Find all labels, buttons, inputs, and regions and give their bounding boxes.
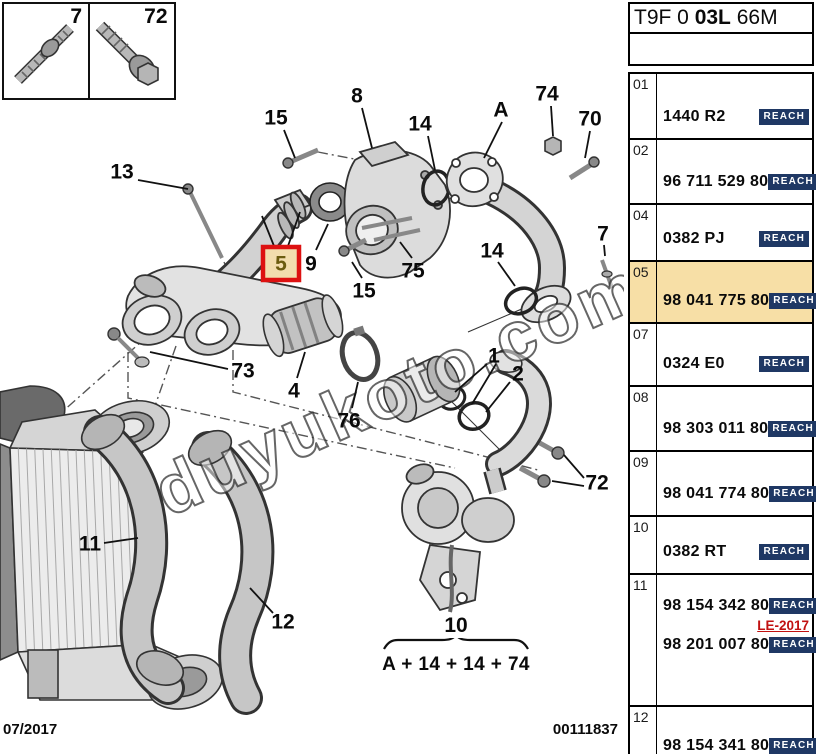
reach-badge-button[interactable]: REACH [759, 231, 809, 247]
part-line: 98 154 341 80REACH [663, 737, 809, 754]
callout-12: 12 [271, 611, 294, 634]
part-line: 98 041 774 80REACH [663, 485, 809, 503]
callout-15: 15 [264, 107, 288, 130]
parts-table-row-07[interactable]: 070324 E0REACH [630, 324, 812, 387]
assembly-expression: A + 14 + 14 + 74 [380, 655, 532, 675]
callout-leader-A [484, 122, 502, 158]
row-index: 05 [630, 262, 657, 322]
model-code-empty-cell [628, 34, 814, 66]
callout-73: 73 [231, 360, 254, 383]
part-line: 98 154 342 80REACH [663, 597, 809, 615]
parts-table: 011440 R2REACH0296 711 529 80REACH040382… [628, 72, 814, 754]
row-content: 96 711 529 80REACH [657, 140, 812, 203]
callout-leader-7 [604, 245, 605, 256]
callout-7: 7 [597, 223, 609, 246]
part-number: 98 201 007 80 [663, 636, 769, 654]
assembly-formula: 10 A + 14 + 14 + 74 [380, 615, 532, 675]
document-number: 00111837 [553, 721, 618, 738]
turbocharger [402, 461, 514, 612]
callout-75: 75 [401, 260, 425, 283]
part-line: 96 711 529 80REACH [663, 173, 809, 191]
reach-badge-button[interactable]: REACH [759, 544, 809, 560]
overbrace [380, 638, 532, 650]
reach-badge-button[interactable]: REACH [769, 598, 816, 614]
row-index: 09 [630, 452, 657, 515]
callout-1: 1 [488, 345, 500, 368]
callout-leader-72 [552, 481, 584, 486]
callout-4: 4 [288, 380, 300, 403]
row-content: 1440 R2REACH [657, 74, 812, 138]
parts-table-row-05[interactable]: 0598 041 775 80REACH [630, 262, 812, 324]
row-index: 08 [630, 387, 657, 450]
callout-14: 14 [408, 113, 432, 136]
callout-76: 76 [337, 410, 360, 433]
reach-badge-button[interactable]: REACH [768, 421, 816, 437]
part-line: 98 201 007 80REACH [663, 636, 809, 654]
row-content: 0382 PJREACH [657, 205, 812, 260]
part-number: 0382 PJ [663, 230, 725, 248]
assembly-number: 10 [380, 615, 532, 637]
reach-badge-button[interactable]: REACH [769, 293, 816, 309]
legend-box-72: 72 [88, 2, 176, 100]
part-line: 98 041 775 80REACH [663, 292, 809, 310]
part-number: 0382 RT [663, 543, 726, 561]
parts-panel: T9F 0 03L 66M 011440 R2REACH0296 711 529… [624, 0, 816, 754]
parts-table-row-02[interactable]: 0296 711 529 80REACH [630, 140, 812, 205]
part-number: 98 154 342 80 [663, 597, 769, 615]
row-index: 01 [630, 74, 657, 138]
row-content: 0324 E0REACH [657, 324, 812, 385]
callout-leader-8 [362, 108, 372, 148]
callout-74: 74 [535, 83, 559, 106]
callout-13: 13 [110, 161, 133, 184]
row-index: 11 [630, 575, 657, 705]
row-index: 07 [630, 324, 657, 385]
parts-table-row-09[interactable]: 0998 041 774 80REACH [630, 452, 812, 517]
row-index: 12 [630, 707, 657, 754]
callout-leader-4 [297, 352, 305, 378]
model-code-suffix: 66M [731, 6, 778, 29]
part-line: 0382 PJREACH [663, 230, 809, 248]
callout-5[interactable]: 5 [275, 253, 287, 276]
legend-label-7: 7 [70, 5, 82, 29]
callout-70: 70 [578, 108, 601, 131]
callout-leader-70 [585, 131, 590, 158]
parts-table-row-01[interactable]: 011440 R2REACH [630, 74, 812, 140]
callout-72: 72 [585, 472, 608, 495]
row-content: 98 154 342 80REACHLE-201798 201 007 80RE… [657, 575, 812, 705]
callout-leader-14 [498, 262, 515, 286]
model-code: T9F 0 03L 66M [628, 2, 814, 34]
reach-badge-button[interactable]: REACH [759, 109, 809, 125]
diagram-area: duyukoto.com 1315814A7470597515147734761… [0, 0, 624, 754]
part-number: 98 303 011 80 [663, 420, 768, 438]
legend-label-72: 72 [144, 5, 167, 29]
row-index: 02 [630, 140, 657, 203]
part-number: 98 041 774 80 [663, 485, 769, 503]
callout-leader-74 [551, 106, 553, 136]
row-content: 98 303 011 80REACH [657, 387, 812, 450]
model-code-prefix: T9F 0 [634, 6, 695, 29]
callout-leader-72 [564, 455, 584, 478]
reach-badge-button[interactable]: REACH [769, 637, 816, 653]
parts-table-row-11[interactable]: 1198 154 342 80REACHLE-201798 201 007 80… [630, 575, 812, 707]
part-number: 98 154 341 80 [663, 737, 769, 754]
parts-table-row-08[interactable]: 0898 303 011 80REACH [630, 387, 812, 452]
row-content: 98 041 775 80REACH [657, 262, 812, 322]
part-number: 0324 E0 [663, 355, 725, 373]
parts-table-row-04[interactable]: 040382 PJREACH [630, 205, 812, 262]
reach-badge-button[interactable]: REACH [759, 356, 809, 372]
callout-14: 14 [480, 240, 504, 263]
callout-leader-15 [284, 130, 295, 158]
fastener-legend: 7 72 [2, 2, 176, 100]
part-line: 1440 R2REACH [663, 108, 809, 126]
row-index: 10 [630, 517, 657, 573]
callout-2: 2 [512, 363, 524, 386]
callout-8: 8 [351, 85, 363, 108]
supersession-note-link[interactable]: LE-2017 [757, 618, 809, 633]
model-code-bold: 03L [695, 6, 731, 29]
row-content: 98 041 774 80REACH [657, 452, 812, 515]
part-number: 98 041 775 80 [663, 292, 769, 310]
callout-9: 9 [305, 253, 317, 276]
callout-A: A [493, 99, 508, 122]
legend-box-7: 7 [2, 2, 90, 100]
parts-catalog-page: duyukoto.com 1315814A7470597515147734761… [0, 0, 816, 754]
part-number: 1440 R2 [663, 108, 726, 126]
row-content: 98 154 341 80REACH [657, 707, 812, 754]
callout-leader-13 [138, 180, 188, 189]
callout-leader-9 [316, 224, 328, 250]
reach-badge-button[interactable]: REACH [769, 486, 816, 502]
part-number: 96 711 529 80 [663, 173, 768, 191]
row-index: 04 [630, 205, 657, 260]
part-line: 0324 E0REACH [663, 355, 809, 373]
reach-badge-button[interactable]: REACH [768, 174, 816, 190]
part-line: 98 303 011 80REACH [663, 420, 809, 438]
parts-table-row-12[interactable]: 1298 154 341 80REACH [630, 707, 812, 754]
part-line: 0382 RTREACH [663, 543, 809, 561]
reach-badge-button[interactable]: REACH [769, 738, 816, 754]
callout-11: 11 [79, 533, 102, 556]
parts-table-row-10[interactable]: 100382 RTREACH [630, 517, 812, 575]
row-content: 0382 RTREACH [657, 517, 812, 573]
revision-date: 07/2017 [3, 721, 57, 738]
callout-15: 15 [352, 280, 376, 303]
